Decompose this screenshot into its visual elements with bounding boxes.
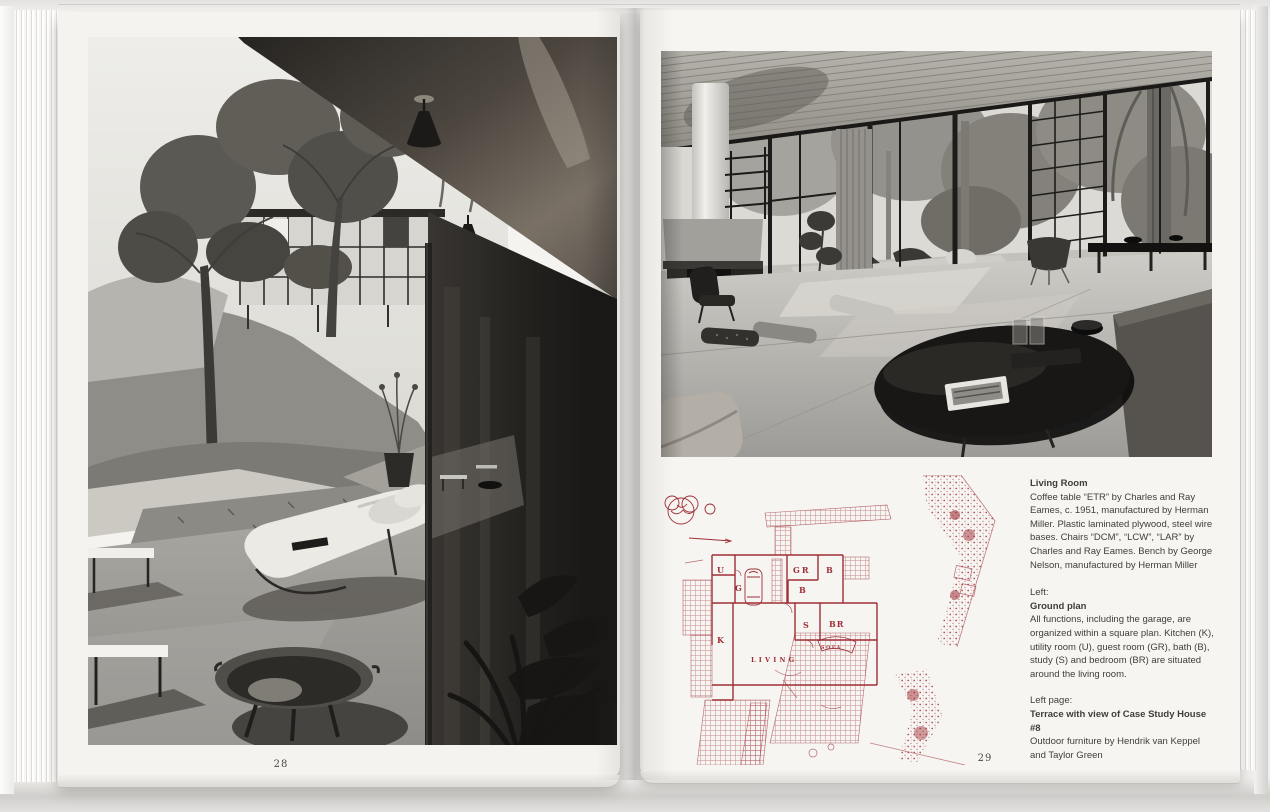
caption-kicker: Left page: <box>1030 694 1217 708</box>
plan-label-g: G <box>735 583 742 593</box>
page-stack-bottom-left <box>58 775 620 788</box>
plan-car <box>745 569 762 605</box>
caption-body: Outdoor furniture by Hendrik van Keppel … <box>1030 735 1217 762</box>
plan-label-living: LIVING <box>751 656 797 664</box>
plan-label-br: BR <box>829 619 844 629</box>
steel-column <box>425 243 432 745</box>
plan-paving <box>683 505 891 765</box>
page-stack-bottom-right <box>640 771 1240 784</box>
book-spread-photo: U G GR B B K S BR LIVING SOFA Living Roo… <box>0 0 1270 812</box>
caption-body: All functions, including the garage, are… <box>1030 613 1217 681</box>
plan-label-k: K <box>717 635 725 645</box>
caption-heading: Living Room <box>1030 477 1217 491</box>
page-number-right: 29 <box>965 753 1005 764</box>
page-number-left: 28 <box>261 759 301 770</box>
page-stack-left <box>14 10 58 782</box>
book-cover-edge-right <box>1254 6 1268 794</box>
caption-left-page-ref: Left page: Terrace with view of Case Stu… <box>1030 694 1217 762</box>
plan-label-b1: B <box>826 565 833 575</box>
terrace-photo <box>88 37 617 745</box>
caption-column: Living Room Coffee table “ETR” by Charle… <box>1030 477 1217 762</box>
ground-plan-drawing: U G GR B B K S BR LIVING SOFA <box>655 475 1010 765</box>
book-cover-edge-left <box>0 6 14 794</box>
caption-heading: Terrace with view of Case Study House #8 <box>1030 708 1217 735</box>
white-column <box>692 83 729 223</box>
page-stack-right <box>1238 10 1256 770</box>
plan-label-b2: B <box>799 585 806 595</box>
living-room-photo <box>661 51 1212 457</box>
caption-body: Coffee table “ETR” by Charles and Ray Ea… <box>1030 491 1217 573</box>
plan-label-s: S <box>803 620 809 630</box>
caption-living-room: Living Room Coffee table “ETR” by Charle… <box>1030 477 1217 572</box>
curtain <box>836 129 872 291</box>
caption-ground-plan: Left: Ground plan All functions, includi… <box>1030 586 1217 681</box>
caption-heading: Ground plan <box>1030 600 1217 614</box>
plan-label-sofa: SOFA <box>821 645 842 651</box>
plan-label-u: U <box>717 565 724 575</box>
plan-trees <box>665 496 731 543</box>
caption-kicker: Left: <box>1030 586 1217 600</box>
plan-label-gr: GR <box>793 565 810 575</box>
